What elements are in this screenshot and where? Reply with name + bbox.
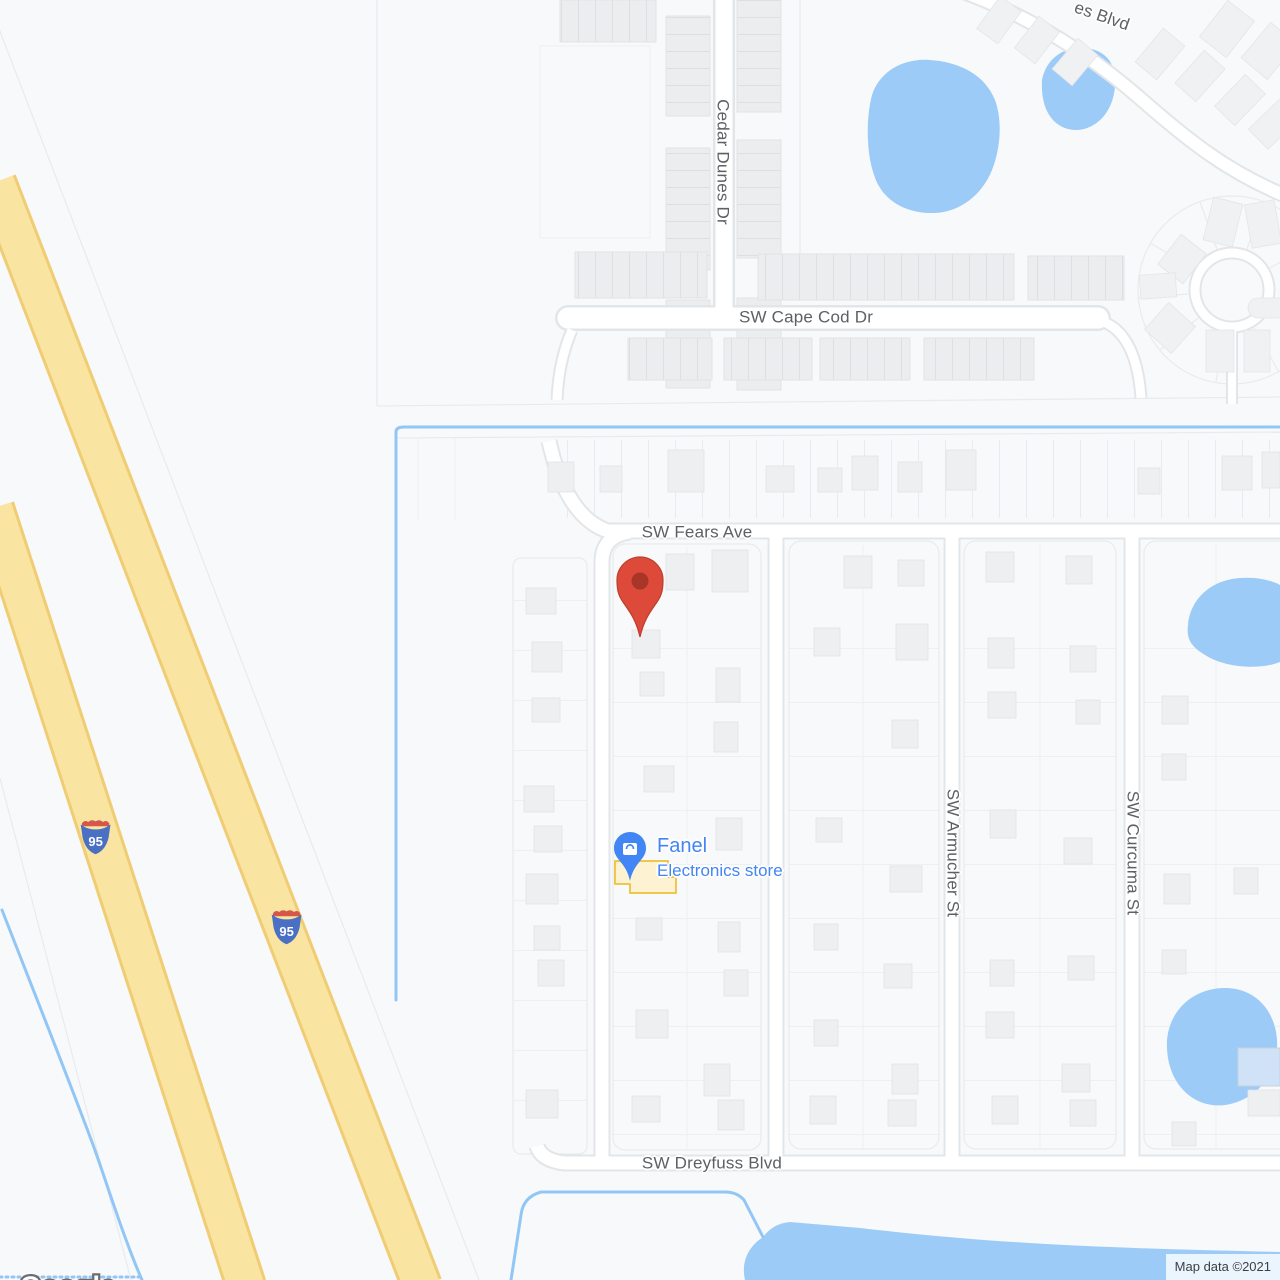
pin-center-dot <box>632 573 649 590</box>
street-label-fears: SW Fears Ave <box>642 524 753 541</box>
street-label-curcuma: SW Curcuma St <box>1125 791 1142 915</box>
shopping-bag-icon <box>623 843 637 855</box>
google-logo-text: Google <box>20 1271 116 1280</box>
map-graphics: 95 95 <box>0 0 1280 1280</box>
poi-category: Electronics store <box>657 861 783 881</box>
shield-number: 95 <box>88 834 102 849</box>
street-label-cape-cod: SW Cape Cod Dr <box>739 309 873 326</box>
street-label-cedar-dunes: Cedar Dunes Dr <box>715 99 732 225</box>
map-attribution: Map data ©2021 <box>1166 1254 1280 1280</box>
poi-name: Fanel <box>657 835 783 858</box>
shield-number: 95 <box>279 924 293 939</box>
map-canvas[interactable]: 95 95 Cedar Dunes Dr SW Cape Cod Dr SW F… <box>0 0 1280 1280</box>
street-label-armucher: SW Armucher St <box>945 789 962 917</box>
poi-label-fanel[interactable]: Fanel Electronics store <box>657 835 783 881</box>
street-label-dreyfuss: SW Dreyfuss Blvd <box>642 1155 782 1172</box>
